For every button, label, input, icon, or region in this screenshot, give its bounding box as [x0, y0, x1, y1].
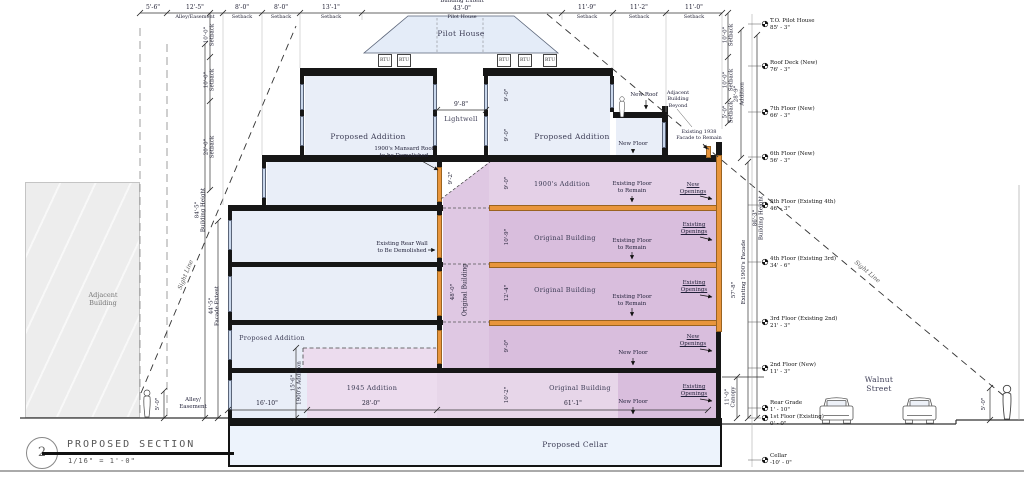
building-extent-value: 43'-0": [453, 5, 471, 12]
1900s-addition-label: 1900's Addition: [534, 180, 590, 188]
street-name: WalnutStreet: [865, 375, 893, 393]
floor-height-dim: 9'-0": [504, 340, 510, 353]
pilot-house-label: Pilot House: [437, 29, 484, 38]
top-dim-label: Setback: [684, 14, 704, 20]
existing-openings-note: ExistingOpenings: [681, 384, 707, 398]
canopy-dim: 11'-0"Canopy: [725, 387, 738, 408]
proposed-cellar-label: Proposed Cellar: [542, 440, 607, 449]
existing-floor-note: Existing Floorto Remain: [612, 181, 651, 195]
level-marker-name: T.O. Pilot House: [770, 18, 815, 24]
top-dim-value: 11'-2": [630, 4, 648, 11]
level-marker-elev: 21' - 3": [770, 323, 790, 329]
dimension-lines: [140, 13, 990, 420]
top-dim-value: 11'-0": [685, 4, 703, 11]
new-floor-note: New Floor: [618, 141, 647, 148]
floor-height-dim: 10'-2": [504, 387, 510, 403]
adjacent-beyond-note: AdjacentBuildingBeyond: [667, 90, 689, 109]
new-openings-note: NewOpenings: [680, 182, 706, 196]
top-dim-value: 5'-6": [146, 4, 160, 11]
level-marker-elev: 46' - 3": [770, 206, 790, 212]
lightwell-dim: 9'-8": [454, 101, 468, 108]
alley-easement-label: Alley/Easement: [179, 397, 207, 411]
top-dim-label: Setback: [577, 14, 597, 20]
level-marker-stubs: [748, 24, 761, 460]
original-building-label: Original Building: [534, 234, 596, 242]
existing-facade-dim: 57'-8": [731, 282, 737, 298]
level-marker-name: Roof Deck (New): [770, 60, 817, 66]
level-marker-elev: 56' - 3": [770, 158, 790, 164]
top-dim-value: 8'-0": [274, 4, 288, 11]
mansard-height-dim: 9'-2": [448, 172, 454, 185]
level-marker-name: 7th Floor (New): [770, 106, 815, 112]
level-marker-name: 3rd Floor (Existing 2nd): [770, 316, 837, 322]
level-marker-symbols: [762, 21, 768, 463]
width-dim: 61'-1": [564, 400, 582, 407]
level-marker-name: 4th Floor (Existing 3rd): [770, 256, 836, 262]
level-marker-elev: 85' - 3": [770, 25, 790, 31]
setback-dim: 10'-0"Setback: [204, 69, 217, 91]
person-right: [1003, 385, 1011, 419]
floor-height-dim: 9'-0": [504, 129, 510, 142]
1945-addition-label: 1945 Addition: [347, 384, 397, 392]
level-marker-name: 6th Floor (New): [770, 151, 815, 157]
building-extent-sub: Pilot House: [447, 14, 476, 20]
person-height-dim: 5'-0": [155, 398, 161, 411]
floor-height-dim: 12'-4": [504, 285, 510, 301]
new-openings-note: NewOpenings: [680, 334, 706, 348]
proposed-addition-label: Proposed Addition: [239, 334, 305, 342]
car: [820, 398, 853, 423]
floor-height-dim: 9'-0": [504, 89, 510, 102]
addition-height-dim: 28'-9"Addition: [734, 82, 747, 106]
ticks-vertical: [161, 10, 993, 423]
existing-facade-label: Existing 1900's Facade: [741, 240, 747, 304]
level-marker-name: Rear Grade: [770, 400, 802, 406]
original-building-label: Original Building: [534, 286, 596, 294]
level-marker-elev: 66' - 3": [770, 113, 790, 119]
new-floor-note: New Floor: [618, 399, 647, 406]
top-dim-value: 12'-5": [186, 4, 204, 11]
existing-openings-note: ExistingOpenings: [681, 280, 707, 294]
level-marker-elev: 0' - 0": [770, 421, 786, 427]
existing-openings-note: ExistingOpenings: [681, 222, 707, 236]
top-dim-label: Setback: [232, 14, 252, 20]
proposed-addition-label: Proposed Addition: [534, 132, 609, 141]
existing-floor-note: Existing Floorto Remain: [612, 238, 651, 252]
person-left: [144, 390, 150, 417]
top-dim-label: Setback: [271, 14, 291, 20]
setback-dim: 10'-0"Setback: [204, 24, 217, 46]
top-dim-value: 13'-1": [322, 4, 340, 11]
floor-height-dim: 10'-9": [504, 229, 510, 245]
level-marker-name: 1st Floor (Existing): [770, 414, 824, 420]
core-label: Original Building: [463, 264, 470, 316]
top-dim-value: 11'-9": [578, 4, 596, 11]
core-height-dim: 48'-0": [450, 284, 456, 300]
proposed-section-drawing: RTU RTU RTU RTU RTU: [0, 0, 1024, 478]
setback-dim: 20'-0"Setback: [204, 136, 217, 158]
top-dim-label: Setback: [629, 14, 649, 20]
top-dim-value: 8'-0": [235, 4, 249, 11]
person-on-roof: [620, 97, 625, 117]
level-marker-name: Cellar: [770, 453, 787, 459]
car: [903, 398, 936, 423]
drawing-scale: 1/16" = 1'-0": [68, 457, 136, 465]
new-roof-note: New Roof: [630, 92, 657, 99]
drawing-title: PROPOSED SECTION: [67, 439, 195, 450]
level-marker-elev: 1' - 10": [770, 407, 790, 413]
linework-layer: [0, 0, 1024, 478]
original-building-label: Original Building: [549, 384, 611, 392]
top-dim-label: Alley/Easement: [175, 14, 214, 20]
building-height-dim: 86'-3"Building Height: [753, 196, 766, 240]
level-marker-name: 2nd Floor (New): [770, 362, 816, 368]
annotation-arrows: [420, 100, 712, 414]
mansard-note: 1900's Mansard Roofto be Demolished: [374, 146, 433, 160]
person-height-dim: 5'-0": [981, 398, 987, 411]
top-dim-label: Setback: [321, 14, 341, 20]
existing-floor-note: Existing Floorto Remain: [612, 294, 651, 308]
facade-extent-dim: 44'-5"Facade Extent: [209, 286, 222, 326]
building-height-dim: 84'-5"Building Height: [195, 188, 208, 232]
floor-height-dim: 9'-0": [504, 177, 510, 190]
setback-dim: 10'-0"Setback: [723, 24, 736, 46]
level-marker-elev: -10' - 0": [770, 460, 792, 466]
adjacent-building-label: AdjacentBuilding: [88, 291, 117, 307]
level-marker-name: 5th Floor (Existing 4th): [770, 199, 836, 205]
level-marker-elev: 11' - 3": [770, 369, 790, 375]
facade-1938-note: Existing 1938Facade to Remain: [675, 129, 723, 142]
proposed-addition-label: Proposed Addition: [330, 132, 405, 141]
width-dim: 16'-10": [256, 400, 278, 407]
title-underline: [42, 452, 234, 455]
grade-lines: [20, 418, 1024, 424]
new-floor-note: New Floor: [618, 350, 647, 357]
rear-wall-note: Existing Rear Wallto Be Demolished: [376, 241, 428, 255]
1900s-addition-outline: [303, 348, 436, 367]
setback-dim: 5'-0"Setback: [723, 101, 736, 123]
level-marker-elev: 76' - 3": [770, 67, 790, 73]
width-dim: 28'-0": [362, 400, 380, 407]
1900s-addition-dim: 15'-6"1900's Addition: [291, 361, 304, 405]
building-extent-label: Building Extent: [440, 0, 484, 4]
lightwell-label: Lightwell: [444, 115, 478, 123]
level-marker-elev: 34' - 6": [770, 263, 790, 269]
